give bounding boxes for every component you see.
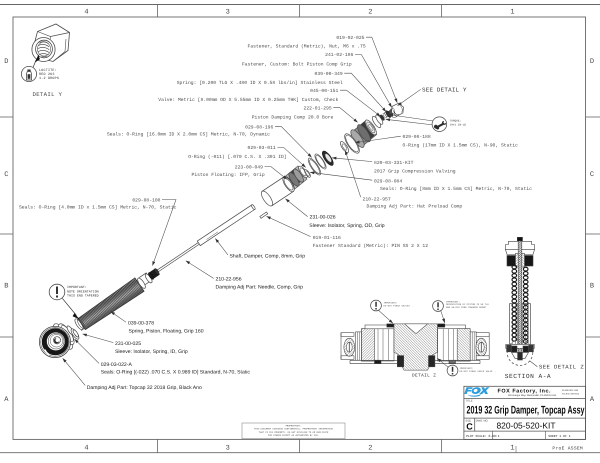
- svg-text:Sleeve: Isolator, Spring, ID,: Sleeve: Isolator, Spring, ID, Grip: [115, 349, 188, 355]
- svg-text:820-05-520-KIT: 820-05-520-KIT: [497, 420, 557, 430]
- svg-text:029-08-084: 029-08-084: [374, 178, 402, 184]
- svg-text:Fax 831-768-9312: Fax 831-768-9312: [562, 393, 580, 396]
- svg-text:231-00-026: 231-00-026: [310, 214, 336, 220]
- svg-text:029-03-011: 029-03-011: [248, 145, 276, 151]
- svg-text:B: B: [590, 282, 594, 290]
- svg-text:019-01-116: 019-01-116: [313, 235, 341, 241]
- svg-text:AND 50-OLD RING TOWARDS GROUP: AND 50-OLD RING TOWARDS GROUP: [446, 306, 487, 309]
- svg-text:820-03-331-KIT: 820-03-331-KIT: [374, 160, 414, 166]
- svg-text:1: 1: [510, 445, 514, 453]
- svg-text:10±1 IN-LB: 10±1 IN-LB: [450, 123, 467, 126]
- svg-text:045-00-151: 045-00-151: [310, 88, 338, 94]
- svg-text:O-Ring (-011) [.070 C.S. X .30: O-Ring (-011) [.070 C.S. X .301 ID]: [188, 154, 286, 160]
- svg-text:Seals: O-Ring [(-022) .070 C.S: Seals: O-Ring [(-022) .070 C.S. X 0.989 …: [101, 369, 251, 375]
- svg-text:DO NOT PINCH VALVES →: DO NOT PINCH VALVES →: [384, 304, 414, 307]
- svg-text:D: D: [4, 58, 8, 66]
- svg-text:D: D: [590, 58, 594, 66]
- svg-text:C: C: [4, 171, 8, 179]
- svg-text:Valve: Metric [8.00mm OD X 5.5: Valve: Metric [8.00mm OD X 5.55mm ID X 0…: [158, 97, 338, 103]
- svg-text:210-22-957: 210-22-957: [363, 197, 391, 203]
- svg-text:C: C: [590, 171, 594, 179]
- svg-text:C: C: [466, 421, 473, 431]
- svg-text:SECTION A-A: SECTION A-A: [505, 373, 551, 380]
- svg-text:029-08-196: 029-08-196: [245, 124, 273, 130]
- svg-text:2017 Grip Compression Valving: 2017 Grip Compression Valving: [374, 168, 456, 174]
- svg-text:Damping Adj Part: Hat Preload: Damping Adj Part: Hat Preload Comp: [367, 203, 463, 209]
- svg-text:Piston Damping Comp 20.0 Bore: Piston Damping Comp 20.0 Bore: [252, 114, 334, 120]
- svg-text:SHEET 1 OF 1: SHEET 1 OF 1: [548, 434, 570, 438]
- svg-text:Sleeve: Isolator, Spring, OD,: Sleeve: Isolator, Spring, OD, Grip: [309, 223, 384, 229]
- svg-text:PLOT SCALE: 0.80:1: PLOT SCALE: 0.80:1: [466, 434, 500, 438]
- svg-text:1-2 DROPS: 1-2 DROPS: [39, 76, 59, 81]
- svg-text:2: 2: [368, 8, 372, 16]
- svg-text:222-01-295: 222-01-295: [304, 106, 332, 112]
- svg-text:210-22-956: 210-22-956: [216, 277, 242, 283]
- svg-text:223-00-049: 223-00-049: [235, 164, 263, 170]
- svg-text:231-00-025: 231-00-025: [115, 341, 141, 347]
- svg-text:ProE ASSEM: ProE ASSEM: [552, 446, 583, 452]
- svg-text:029-03-022-A: 029-03-022-A: [101, 362, 133, 368]
- svg-text:4: 4: [84, 8, 88, 16]
- svg-text:Damping Adj Part: Needle, Comp: Damping Adj Part: Needle, Comp, Grip: [216, 284, 304, 290]
- svg-text:Seals: O-Ring [4.0mm ID x 1.5m: Seals: O-Ring [4.0mm ID x 1.5mm CS] Metr…: [19, 205, 177, 211]
- svg-text:Seals: O-Ring [8mm ID X 1.5mm: Seals: O-Ring [8mm ID X 1.5mm CS] Metric…: [380, 186, 532, 192]
- svg-text:Fastener, Standard (Metric), N: Fastener, Standard (Metric), Nut, M6 x .…: [248, 43, 366, 49]
- svg-text:2019 32 Grip Damper, Topcap As: 2019 32 Grip Damper, Topcap Assy: [467, 405, 586, 417]
- svg-text:Fastener, Custom: Bolt Piston: Fastener, Custom: Bolt Piston Comp Grip: [242, 62, 352, 68]
- svg-text:3: 3: [226, 445, 230, 453]
- svg-text:Fastener Standard (Metric): PI: Fastener Standard (Metric): PIN SS 2 X 1…: [313, 243, 429, 249]
- svg-text:Shaft, Damper, Comp, 8mm, Grip: Shaft, Damper, Comp, 8mm, Grip: [230, 254, 306, 260]
- svg-text:029-08-188: 029-08-188: [403, 134, 431, 140]
- svg-text:130 Hangar Way, Watsonville, C: 130 Hangar Way, Watsonville, CA 95076 US…: [508, 394, 557, 397]
- svg-text:039-00-349: 039-00-349: [315, 71, 343, 77]
- svg-text:Piston Floating: IFP, Grip: Piston Floating: IFP, Grip: [192, 172, 265, 178]
- svg-text:Ph 800-369-7469: Ph 800-369-7469: [562, 389, 579, 392]
- svg-text:THIS END TAPERED: THIS END TAPERED: [67, 294, 99, 298]
- svg-text:1: 1: [510, 8, 514, 16]
- svg-text:DWG. NO.: DWG. NO.: [476, 419, 489, 422]
- svg-text:B: B: [4, 282, 8, 290]
- svg-text:FOR OTHERS EXCEPT AS AUTHORIZE: FOR OTHERS EXCEPT AS AUTHORIZED BY FOX.: [268, 434, 319, 437]
- svg-text:039-00-378: 039-00-378: [128, 320, 154, 326]
- svg-text:TORQUE:: TORQUE:: [450, 120, 461, 123]
- svg-text:2: 2: [368, 445, 372, 453]
- svg-text:Damping Adj Part: Topcap 32 20: Damping Adj Part: Topcap 32 2018 Grip, B…: [87, 385, 202, 391]
- svg-text:DETAIL Z: DETAIL Z: [412, 373, 436, 378]
- svg-text:Seals: O-Ring [16.0mm ID X 2.0: Seals: O-Ring [16.0mm ID X 2.0mm CS] Met…: [107, 132, 270, 138]
- svg-text:019-02-025: 019-02-025: [336, 35, 364, 41]
- svg-text:TITLE: TITLE: [466, 400, 473, 403]
- svg-text:3: 3: [226, 8, 230, 16]
- svg-text:DETAIL Y: DETAIL Y: [33, 91, 63, 98]
- svg-text:Spring, Piston, Floating, Grip: Spring, Piston, Floating, Grip 160: [129, 328, 204, 334]
- svg-text:DO NOT PINCH CHECK VALVE →: DO NOT PINCH CHECK VALVE →: [460, 370, 496, 373]
- svg-text:SEE DETAIL Y: SEE DETAIL Y: [422, 87, 467, 94]
- svg-text:O-Ring (17mm ID X 1.5mm CS), N: O-Ring (17mm ID X 1.5mm CS), N-90, Stati…: [403, 142, 519, 148]
- svg-text:241-02-186: 241-02-186: [325, 52, 353, 58]
- svg-text:Spring: [0.200 TLG X .480 ID X: Spring: [0.200 TLG X .480 ID X 0.58 lbs/…: [177, 80, 343, 86]
- svg-text:029-08-108: 029-08-108: [132, 197, 160, 203]
- svg-text:SEE DETAIL Z: SEE DETAIL Z: [539, 364, 584, 371]
- svg-text:4: 4: [84, 445, 88, 453]
